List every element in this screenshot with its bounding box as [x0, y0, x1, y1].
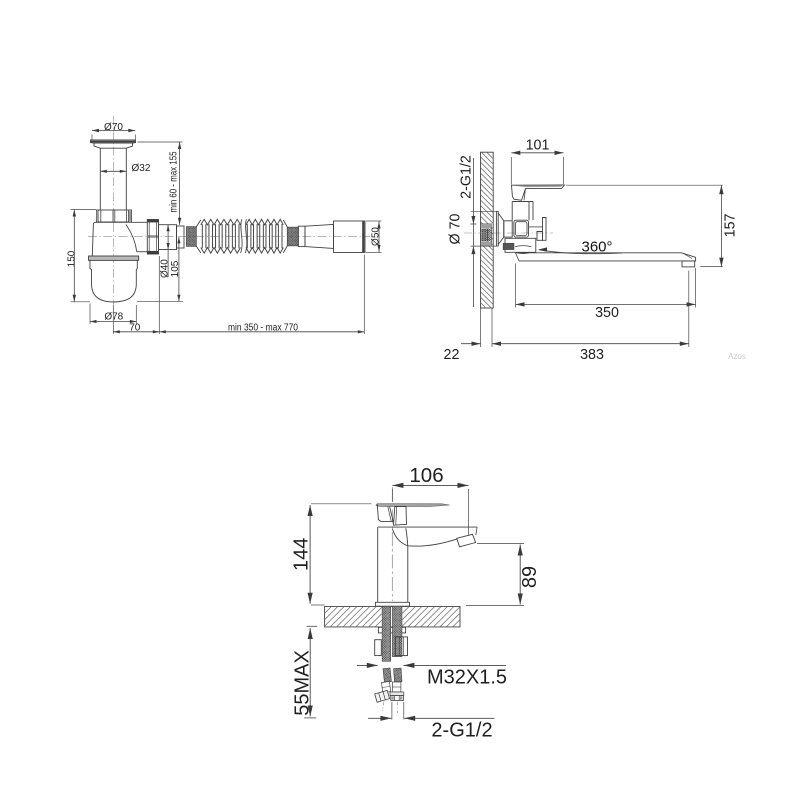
svg-text:383: 383: [580, 347, 604, 363]
svg-text:360°: 360°: [581, 238, 612, 255]
svg-text:101: 101: [526, 137, 550, 153]
svg-text:157: 157: [722, 213, 738, 237]
svg-text:2-G1/2: 2-G1/2: [431, 719, 492, 741]
svg-text:min 60 - max 155: min 60 - max 155: [168, 151, 179, 212]
svg-text:105: 105: [170, 260, 181, 277]
svg-text:55MAX: 55MAX: [291, 650, 313, 716]
svg-text:70: 70: [129, 322, 141, 333]
svg-text:M32X1.5: M32X1.5: [427, 667, 507, 689]
svg-text:Azos: Azos: [728, 352, 746, 361]
svg-text:89: 89: [519, 566, 541, 588]
svg-text:350: 350: [595, 305, 619, 321]
svg-text:22: 22: [444, 347, 460, 363]
svg-text:min 350 - max 770: min 350 - max 770: [228, 322, 298, 333]
svg-text:Ø78: Ø78: [104, 311, 123, 322]
svg-text:150: 150: [66, 250, 77, 267]
svg-text:Ø50: Ø50: [371, 227, 382, 246]
svg-text:144: 144: [291, 538, 313, 571]
svg-text:106: 106: [409, 464, 443, 487]
svg-text:Ø 70: Ø 70: [448, 213, 464, 244]
svg-text:2-G1/2: 2-G1/2: [459, 155, 475, 199]
svg-text:Ø70: Ø70: [104, 122, 123, 133]
svg-text:Ø32: Ø32: [132, 163, 151, 174]
